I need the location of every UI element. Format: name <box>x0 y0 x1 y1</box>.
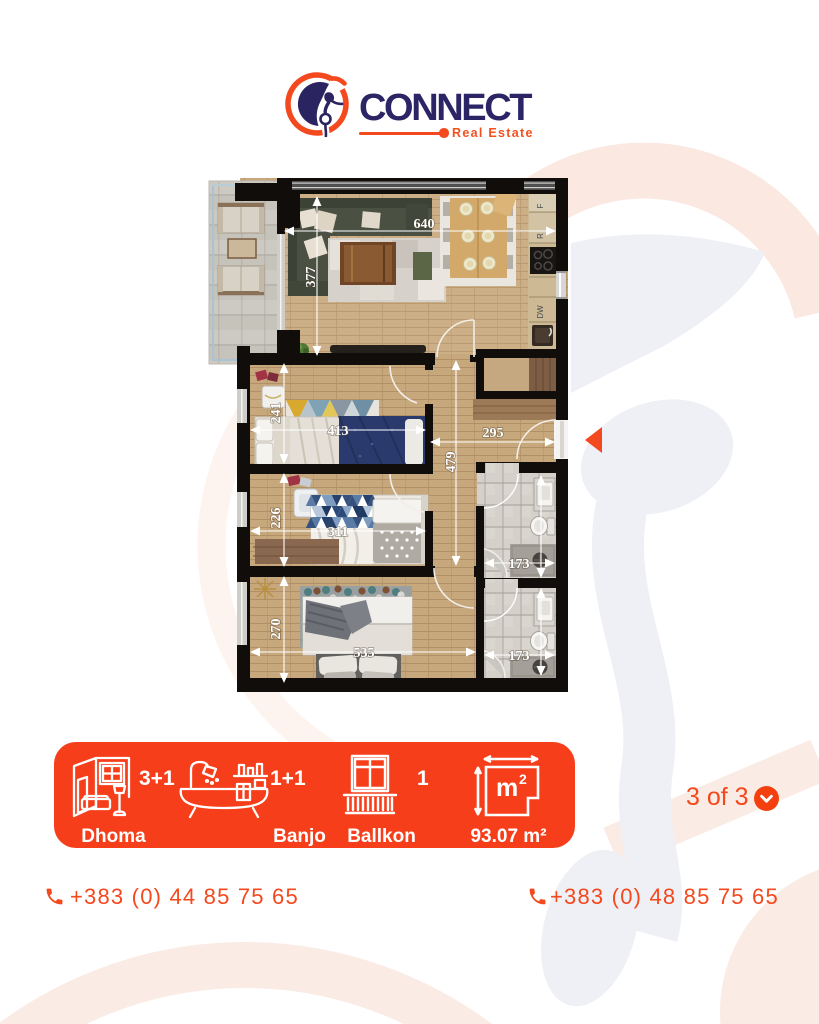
svg-text:535: 535 <box>354 646 375 661</box>
svg-text:413: 413 <box>328 424 349 439</box>
svg-text:295: 295 <box>483 426 504 441</box>
svg-text:173: 173 <box>509 557 530 572</box>
svg-text:377: 377 <box>304 267 319 288</box>
svg-text:226: 226 <box>269 508 284 529</box>
svg-text:DW: DW <box>536 305 545 319</box>
svg-text:241: 241 <box>269 403 284 424</box>
svg-text:173: 173 <box>509 649 530 664</box>
svg-text:m: m <box>496 774 518 802</box>
svg-text:R: R <box>536 233 545 239</box>
svg-text:F: F <box>536 203 545 208</box>
svg-text:311: 311 <box>328 525 348 540</box>
svg-text:640: 640 <box>414 217 435 232</box>
svg-text:270: 270 <box>269 619 284 640</box>
svg-text:479: 479 <box>444 452 459 473</box>
svg-text:2: 2 <box>519 771 527 787</box>
